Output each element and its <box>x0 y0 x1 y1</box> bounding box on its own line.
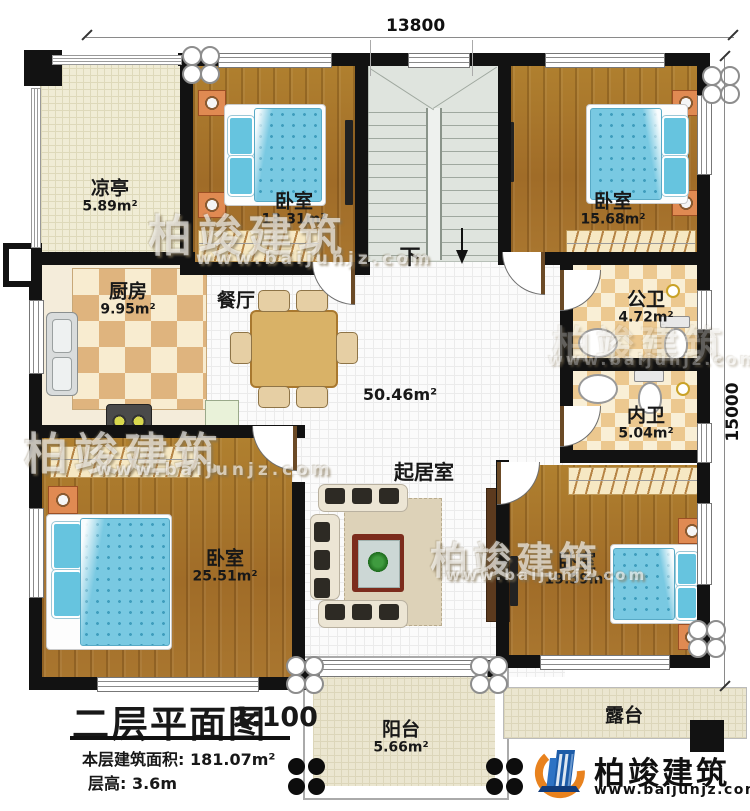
room-label-dining: 餐厅 <box>217 290 255 311</box>
door-leaf <box>560 406 564 446</box>
plan-scale: 1:100 <box>232 702 318 733</box>
room-label-kitchen: 厨房9.95m² <box>100 282 155 319</box>
dining-table <box>250 310 338 388</box>
room-label-bedroom2: 卧室15.68m² <box>580 192 645 229</box>
blanket <box>613 548 675 620</box>
stair-arrow-head <box>456 250 468 264</box>
balcony-pillar-group <box>486 758 523 795</box>
blanket <box>254 108 322 202</box>
pillow <box>662 116 688 156</box>
stair-arrow <box>461 228 463 252</box>
sofa-cushion <box>379 604 399 620</box>
ceiling-lamp <box>676 382 690 396</box>
floor-area-text: 本层建筑面积: 181.07m² <box>82 746 275 770</box>
dining-chair <box>296 290 328 312</box>
sofa-cushion <box>352 488 372 504</box>
stair-treads-left <box>368 112 426 260</box>
dimension-extension <box>370 40 371 76</box>
sliding-door <box>319 660 488 677</box>
dining-chair <box>336 332 358 364</box>
pillow <box>676 552 698 586</box>
floor-height-text: 层高: 3.6m <box>88 770 177 794</box>
dimension-line-top <box>86 37 734 38</box>
room-label-bedroom3: 卧室25.51m² <box>192 549 257 586</box>
window <box>29 300 44 374</box>
door-leaf <box>560 270 564 310</box>
kitchen-sink <box>46 312 78 396</box>
sofa-cushion <box>352 604 372 620</box>
plant <box>368 552 388 572</box>
column-group <box>470 656 504 690</box>
window <box>697 423 712 463</box>
wall <box>355 53 368 275</box>
sofa-cushion <box>314 522 330 542</box>
pavilion-railing <box>31 88 41 248</box>
pillow <box>52 570 82 618</box>
window <box>408 53 470 68</box>
dimension-line-right <box>724 58 725 688</box>
room-label-balcony: 阳台5.66m² <box>373 720 428 757</box>
brand-website: www.baijunjz.com <box>594 782 750 798</box>
nightstand <box>198 90 226 116</box>
pillow <box>52 522 82 570</box>
wardrobe <box>568 467 698 495</box>
sink-basin <box>52 319 72 353</box>
door-leaf <box>497 462 501 504</box>
sofa-cushion <box>314 550 330 570</box>
wall <box>292 482 305 680</box>
pillow <box>662 156 688 196</box>
wall <box>498 53 511 265</box>
dimension-top-value: 13800 <box>382 16 449 36</box>
blanket <box>590 108 662 200</box>
sofa-cushion <box>325 488 345 504</box>
window <box>218 53 332 68</box>
room-label-pavilion: 凉亭5.89m² <box>82 179 137 216</box>
pavilion-railing <box>52 55 182 65</box>
wall <box>560 450 697 463</box>
dimension-tick <box>719 50 730 61</box>
sink-basin <box>52 357 72 391</box>
dimension-extension <box>472 40 473 76</box>
blanket <box>80 518 170 646</box>
window <box>540 655 670 670</box>
window <box>697 503 712 585</box>
sofa-cushion <box>379 488 399 504</box>
room-label-terrace: 露台 <box>605 705 643 726</box>
pillow <box>228 116 254 156</box>
watermark-url: www.baijunjz.com <box>96 460 334 480</box>
balcony-pillar-group <box>288 758 325 795</box>
window <box>97 677 259 692</box>
watermark-url: www.baijunjz.com <box>196 249 434 269</box>
dining-chair <box>258 290 290 312</box>
floor-plan: 凉亭5.89m² 卧室13.31m² 卧室15.68m² 厨房9.95m² 餐厅… <box>0 0 750 811</box>
living-area-label: 50.46m² <box>363 386 437 404</box>
column-group <box>286 656 320 690</box>
room-label-living: 起居室 <box>394 461 454 483</box>
stair-treads-right <box>440 112 498 260</box>
dining-chair <box>258 386 290 408</box>
door-leaf <box>541 252 545 294</box>
column-group <box>688 620 722 654</box>
dimension-tick <box>81 29 92 40</box>
sofa-cushion <box>314 578 330 598</box>
pillow <box>228 156 254 196</box>
title-underline <box>70 736 290 740</box>
dining-chair <box>230 332 252 364</box>
watermark-url: www.baijunjz.com <box>446 566 647 584</box>
window <box>29 508 44 598</box>
room-label-master-bath: 内卫5.04m² <box>618 406 673 443</box>
window <box>697 95 712 175</box>
stair-center-rail <box>426 108 442 260</box>
pillow <box>676 586 698 620</box>
toilet-tank <box>634 370 664 382</box>
bathroom-sink <box>578 374 618 404</box>
sofa-cushion <box>325 604 345 620</box>
tv <box>345 120 353 205</box>
brand-logo-icon <box>530 742 588 800</box>
nightstand <box>48 486 78 514</box>
window <box>545 53 665 68</box>
flue <box>3 243 37 287</box>
watermark-url: www.baijunjz.com <box>548 350 750 369</box>
column-group <box>182 46 216 80</box>
dining-chair <box>296 386 328 408</box>
dimension-tick <box>727 29 738 40</box>
dimension-right-value: 15000 <box>723 375 743 449</box>
column-group <box>702 66 736 100</box>
